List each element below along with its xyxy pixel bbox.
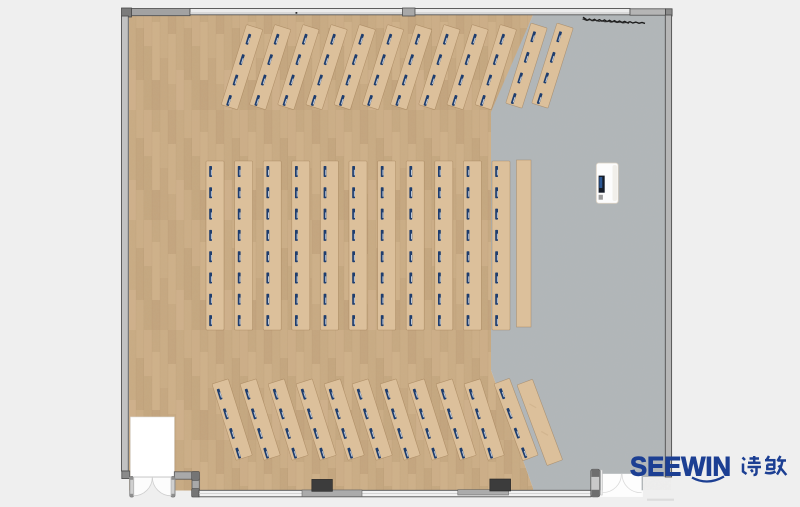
svg-text:SEEWIN: SEEWIN: [630, 452, 731, 482]
